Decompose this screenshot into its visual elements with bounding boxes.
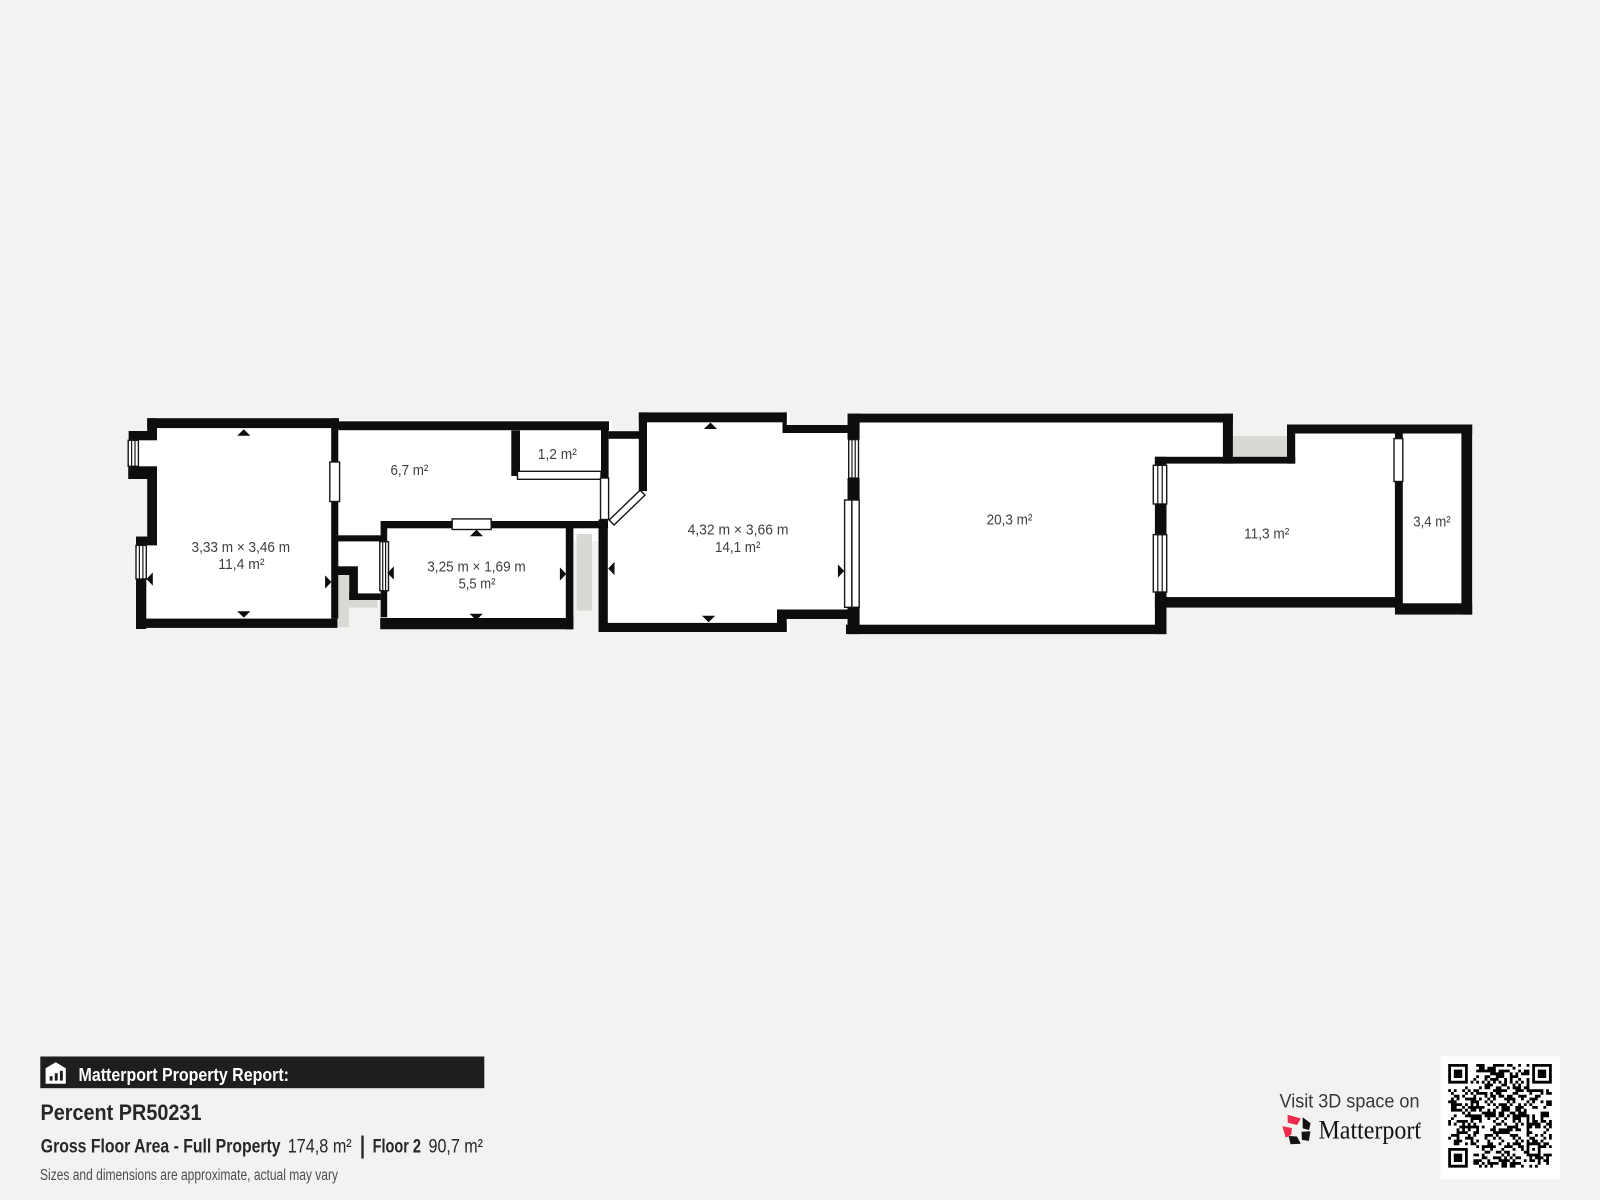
- svg-text:Gross Floor Area - Full Proper: Gross Floor Area - Full Property: [41, 1137, 281, 1158]
- svg-text:11,3 m²: 11,3 m²: [1244, 526, 1289, 543]
- svg-text:4,32 m × 3,66 m: 4,32 m × 3,66 m: [688, 522, 789, 539]
- svg-text:Matterport: Matterport: [1319, 1116, 1422, 1145]
- svg-text:Sizes and dimensions are appro: Sizes and dimensions are approximate, ac…: [40, 1167, 338, 1184]
- svg-text:6,7 m²: 6,7 m²: [390, 462, 428, 479]
- svg-text:174,8 m²: 174,8 m²: [288, 1137, 352, 1158]
- svg-text:14,1 m²: 14,1 m²: [715, 539, 761, 556]
- svg-text:20,3 m²: 20,3 m²: [987, 512, 1033, 529]
- svg-text:3,33 m × 3,46 m: 3,33 m × 3,46 m: [192, 539, 291, 556]
- svg-text:3,25 m × 1,69 m: 3,25 m × 1,69 m: [427, 558, 526, 575]
- svg-text:5,5 m²: 5,5 m²: [459, 576, 496, 593]
- svg-text:11,4 m²: 11,4 m²: [218, 556, 264, 573]
- svg-text:Floor 2: Floor 2: [373, 1137, 421, 1158]
- svg-text:Percent PR50231: Percent PR50231: [41, 1100, 202, 1125]
- svg-text:3,4 m²: 3,4 m²: [1413, 514, 1450, 531]
- svg-text:90,7 m²: 90,7 m²: [429, 1137, 484, 1158]
- svg-text:Matterport Property Report:: Matterport Property Report:: [79, 1065, 290, 1085]
- svg-text:Visit 3D space on: Visit 3D space on: [1280, 1091, 1420, 1113]
- svg-text:1,2 m²: 1,2 m²: [538, 446, 577, 463]
